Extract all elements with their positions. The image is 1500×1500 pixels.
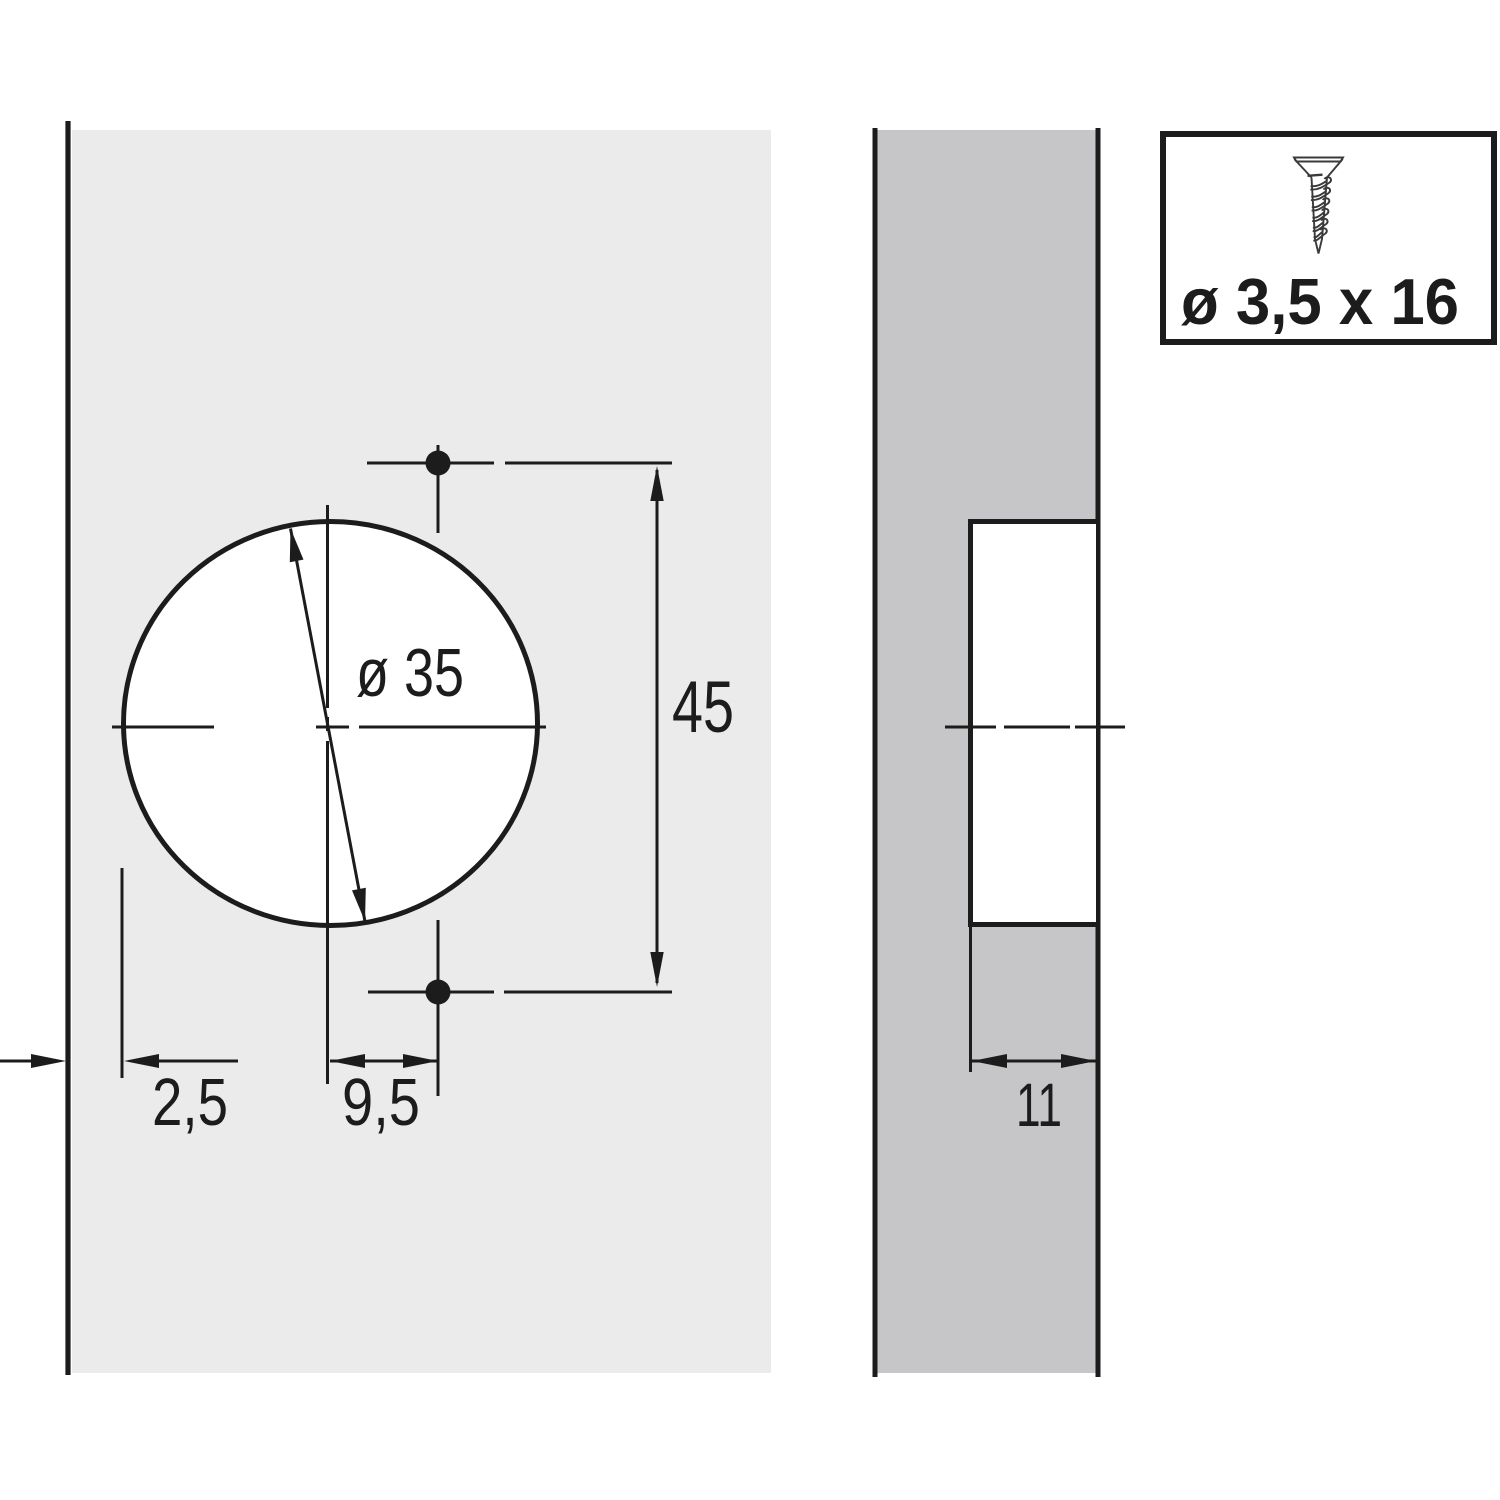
- svg-text:ø 3,5 x 16: ø 3,5 x 16: [1181, 266, 1459, 338]
- svg-text:45: 45: [672, 667, 734, 748]
- svg-text:2,5: 2,5: [152, 1066, 228, 1140]
- svg-text:11: 11: [1016, 1071, 1062, 1139]
- svg-text:ø 35: ø 35: [356, 635, 464, 711]
- svg-text:9,5: 9,5: [342, 1066, 420, 1140]
